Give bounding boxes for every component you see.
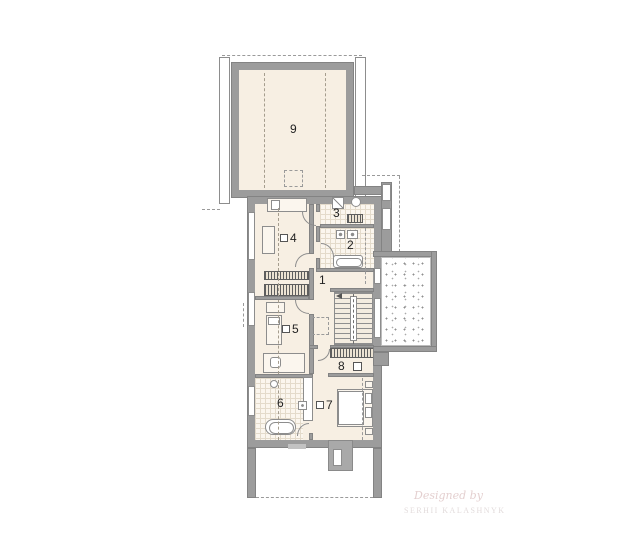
bathtub-icon <box>333 255 363 268</box>
room-number: 3 <box>333 206 340 220</box>
wardrobe-icon <box>264 284 309 296</box>
wall <box>316 204 320 212</box>
bathtub-basin <box>269 422 294 434</box>
room-label-8: 8 <box>338 359 362 373</box>
window <box>374 298 381 338</box>
room-label-7: 7 <box>316 398 333 412</box>
section-dashed-line <box>365 228 366 284</box>
wall <box>373 352 389 366</box>
wall <box>309 268 314 300</box>
ceiling-opening-dashed-rect <box>312 317 329 335</box>
ceiling-slope-dashed-line <box>278 380 279 440</box>
chair-icon <box>270 357 281 368</box>
threshold <box>288 444 306 449</box>
nightstand-icon <box>365 381 373 388</box>
room-number: 2 <box>347 238 354 252</box>
overhang-dashed-line <box>399 176 400 252</box>
room-number: 5 <box>292 322 299 336</box>
room-label-2: 2 <box>347 238 354 252</box>
room-label-9: 9 <box>290 122 297 136</box>
window <box>382 208 391 230</box>
room-label-4: 4 <box>280 231 297 245</box>
dresser-icon <box>266 302 285 313</box>
floor-marker-icon <box>353 362 362 371</box>
stair-walkline-dashed <box>353 294 354 344</box>
terrace-icon <box>381 257 431 346</box>
floor-marker-icon <box>282 325 290 333</box>
wardrobe-icon <box>264 271 309 280</box>
wall <box>328 373 374 377</box>
room-number: 7 <box>326 398 333 412</box>
room-label-3: 3 <box>333 206 340 220</box>
toilet-icon <box>336 230 345 239</box>
room-number: 4 <box>290 231 297 245</box>
window <box>248 212 255 260</box>
pillow-icon <box>365 393 372 404</box>
terrace-dashed-edge <box>256 497 373 498</box>
roof-dashed-line <box>222 55 362 56</box>
wall <box>309 345 318 349</box>
stair-direction-arrow-icon <box>336 293 342 299</box>
shower-drain-icon <box>298 401 307 410</box>
sink-icon <box>351 197 361 207</box>
pillow-icon <box>365 407 372 418</box>
ceiling-slope-dashed-line <box>325 73 326 188</box>
bathtub-basin <box>336 258 362 267</box>
shower-partition <box>303 377 313 421</box>
desk-icon <box>262 226 275 254</box>
floor-marker-icon <box>280 234 288 242</box>
wall <box>309 433 313 440</box>
room-number: 6 <box>277 396 284 410</box>
bathtub-icon <box>265 419 296 435</box>
wall <box>247 448 256 498</box>
room-number: 8 <box>338 359 345 373</box>
mattress <box>338 391 364 425</box>
ceiling-slope-dashed-line <box>278 300 279 374</box>
room-number: 1 <box>319 273 326 287</box>
radiator-icon <box>347 214 363 223</box>
ceiling-slope-dashed-line <box>362 378 363 440</box>
window <box>248 386 255 416</box>
ceiling-slope-dashed-line <box>278 208 279 296</box>
chimney-flue <box>333 449 342 466</box>
wardrobe-icon <box>330 348 374 358</box>
window <box>374 268 381 284</box>
window <box>248 292 255 326</box>
ceiling-slope-dashed-line <box>264 73 265 188</box>
sink-icon <box>270 380 278 388</box>
overhang-dashed-line <box>362 175 400 176</box>
pillar <box>355 57 366 204</box>
wall <box>373 448 382 498</box>
floor-marker-icon <box>316 401 324 409</box>
watermark-author: SERHII KALASHNYK <box>404 506 506 515</box>
wall <box>354 186 382 195</box>
window <box>382 184 391 201</box>
wall <box>316 226 320 242</box>
room-number: 9 <box>290 122 297 136</box>
floor-plan-canvas: 9 <box>0 0 638 556</box>
overhang-dashed-line <box>243 303 244 327</box>
pillar <box>219 57 230 204</box>
balcony-wall <box>431 251 437 352</box>
room-label-5: 5 <box>282 322 299 336</box>
watermark-designed-by: Designed by <box>414 489 483 502</box>
room-label-1: 1 <box>319 273 326 287</box>
nightstand-icon <box>365 428 373 435</box>
hatch-opening-dashed-rect <box>284 170 303 187</box>
room-label-6: 6 <box>277 396 284 410</box>
overhang-dashed-line <box>202 209 220 210</box>
